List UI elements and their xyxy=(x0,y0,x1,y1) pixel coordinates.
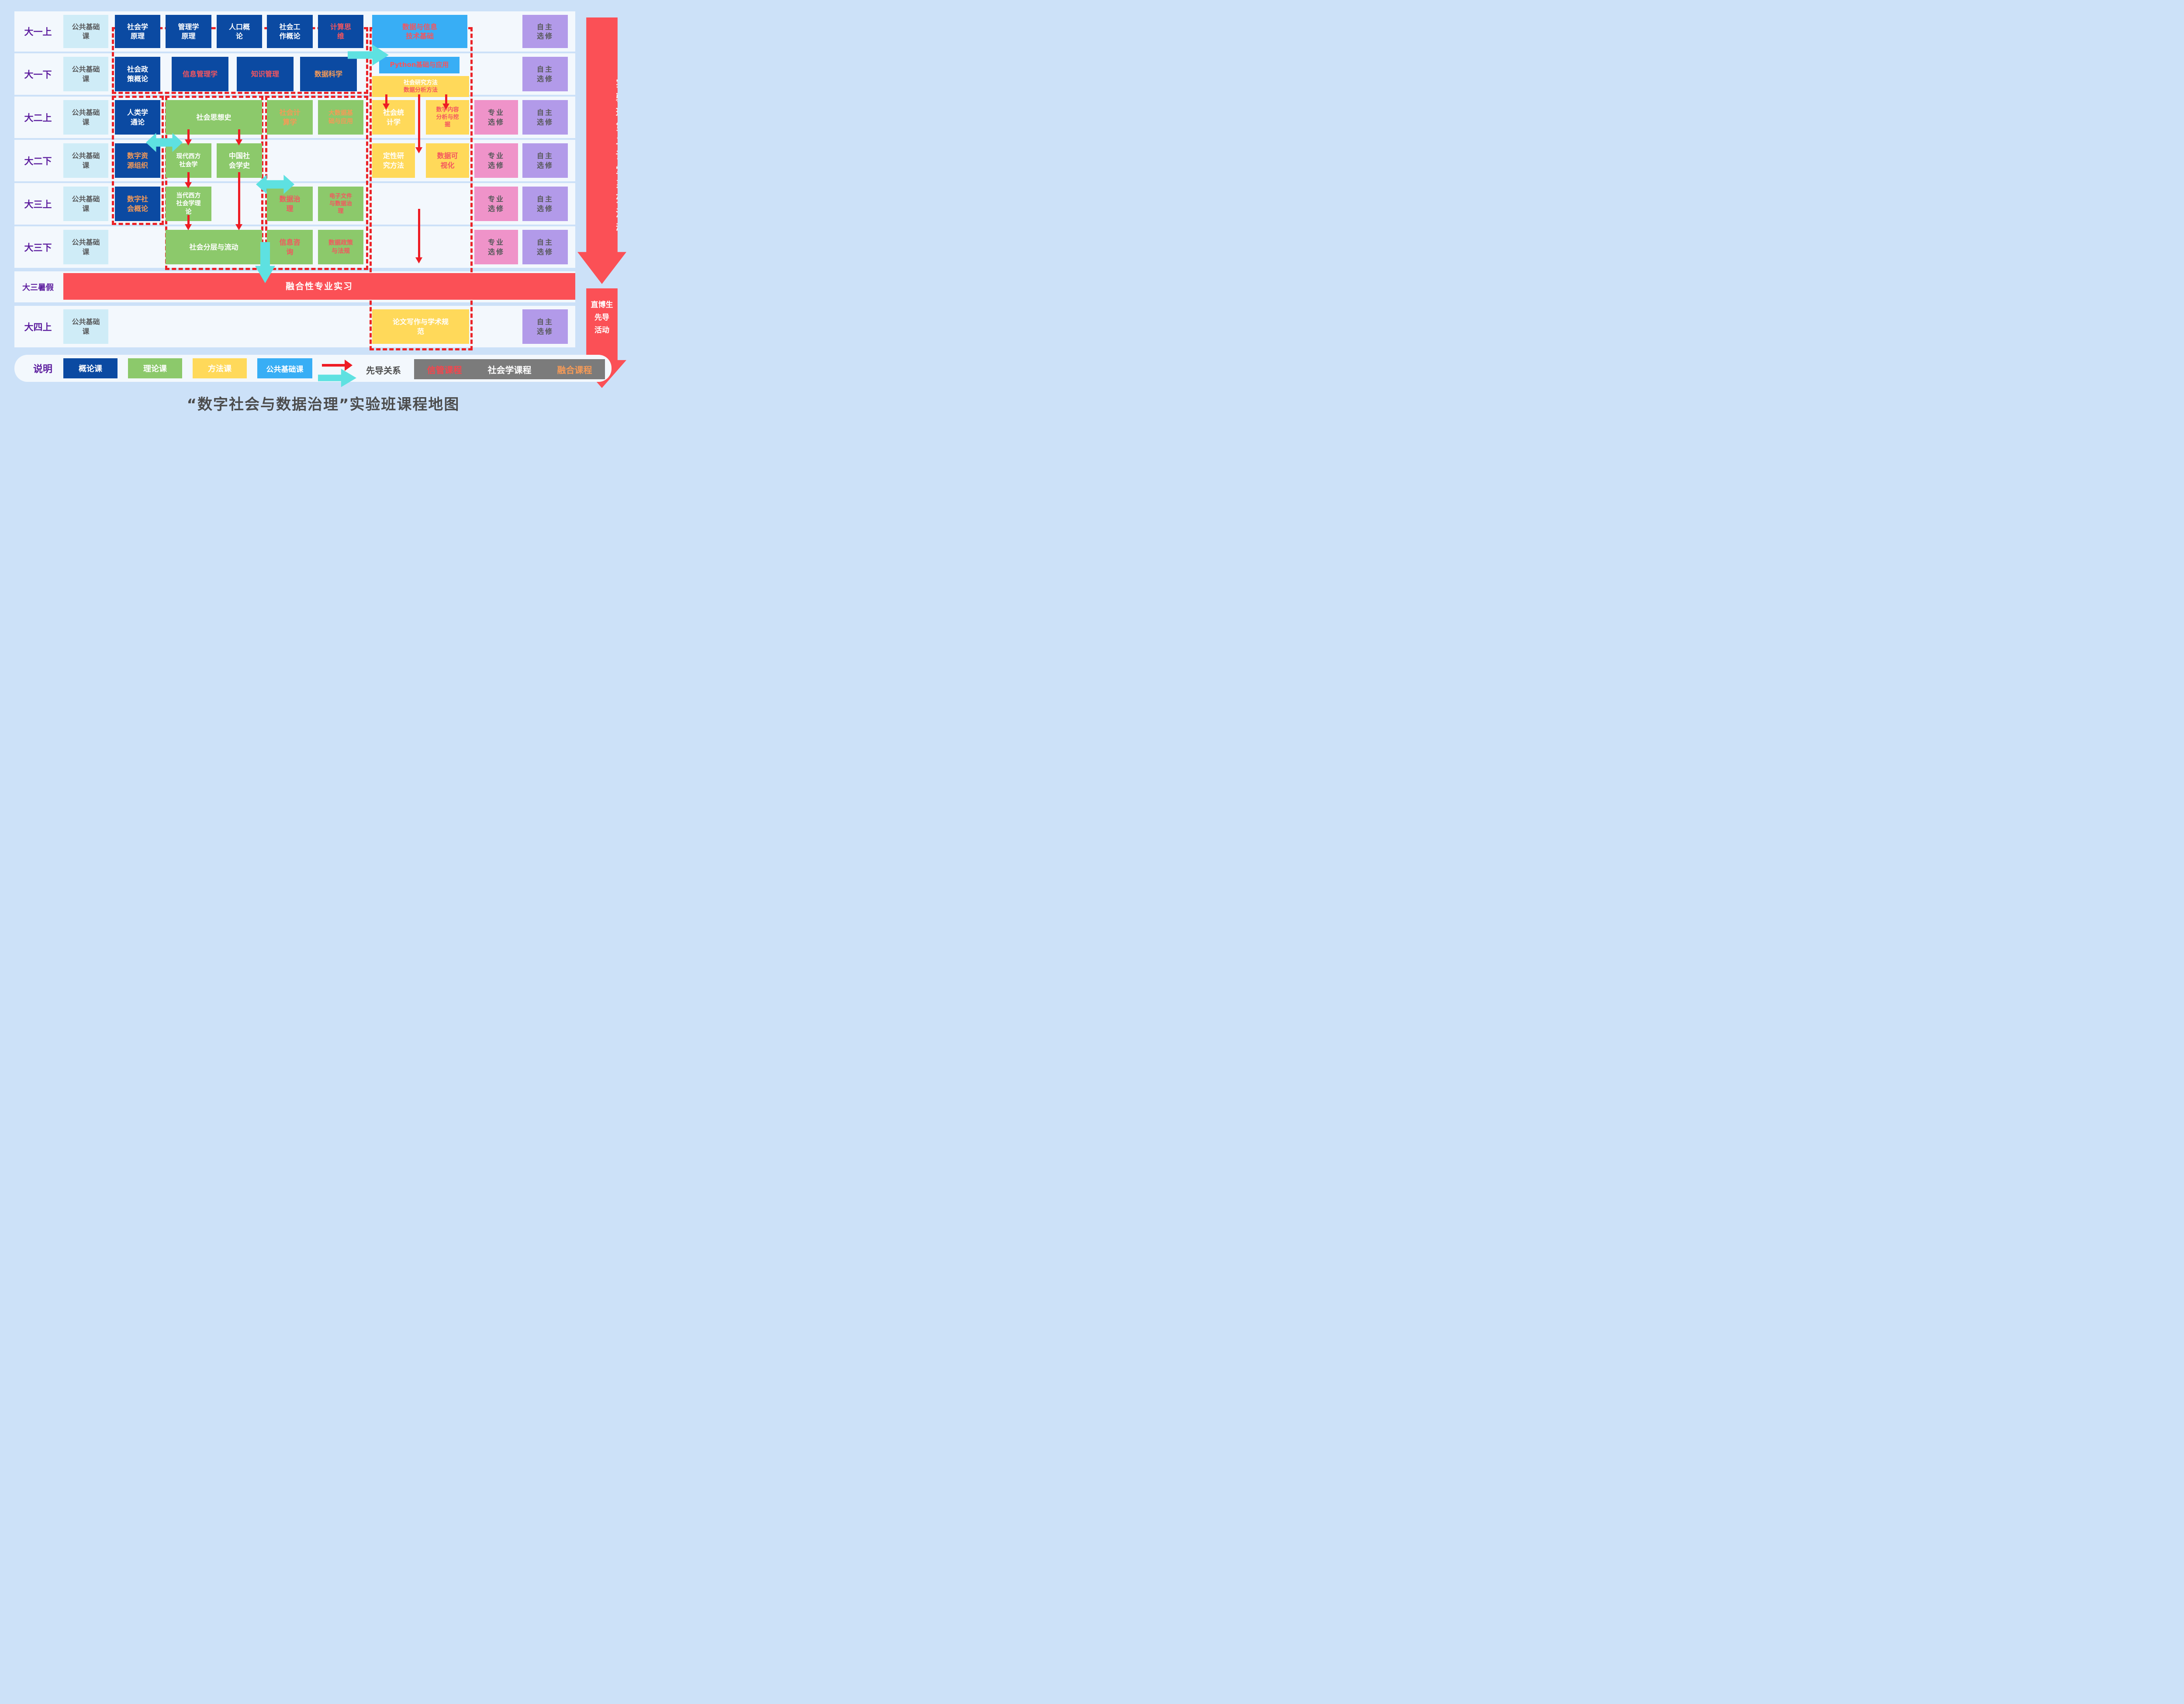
page-title: “数字社会与数据治理”实验班课程地图 xyxy=(17,392,629,414)
semester-label: 大二下 xyxy=(14,140,62,181)
elective-free: 自主 选修 xyxy=(522,143,568,178)
semester-label: 大三下 xyxy=(14,226,62,268)
course-social-statistics: 社会统 计学 xyxy=(372,100,415,135)
prereq-arrow-contemporary-to-stratification xyxy=(187,215,190,225)
course-social-stratification: 社会分层与流动 xyxy=(166,230,262,264)
elective-free: 自主 选修 xyxy=(522,15,568,48)
semester-label: 大一下 xyxy=(14,53,62,95)
prereq-arrow-modern-to-contemporary xyxy=(187,172,190,183)
course-social-work-intro: 社会工 作概论 xyxy=(267,15,313,48)
public-course-box: 公共基础 课 xyxy=(63,100,108,135)
course-research-methods: 社会研究方法 数据分析方法 xyxy=(372,76,469,97)
public-course-box: 公共基础 课 xyxy=(63,187,108,221)
elective-major: 专业 选修 xyxy=(474,230,518,264)
semester-label: 大三上 xyxy=(14,183,62,225)
internship-band: 融合性专业实习 xyxy=(63,273,575,300)
semester-label: 大四上 xyxy=(14,306,62,347)
course-management-principles: 管理学 原理 xyxy=(166,15,211,48)
prereq-arrow-methods-long xyxy=(418,94,420,148)
elective-free: 自主 选修 xyxy=(522,230,568,264)
prereq-arrow-methods-to-statistics xyxy=(385,94,387,104)
elective-free: 自主 选修 xyxy=(522,187,568,221)
course-data-info-tech-basics: 数据与信息 技术基础 xyxy=(372,15,467,48)
course-qualitative-methods: 定性研 究方法 xyxy=(372,143,415,178)
course-computational-thinking: 计算思 维 xyxy=(318,15,363,48)
elective-major: 专业 选修 xyxy=(474,100,518,135)
course-social-computing: 社会计 算学 xyxy=(267,100,313,135)
course-data-science: 数据科学 xyxy=(300,57,357,91)
course-sociology-principles: 社会学 原理 xyxy=(115,15,160,48)
legend-theory-course: 理论课 xyxy=(128,358,182,378)
legend-course-tags: 信管课程 社会学课程 融合课程 xyxy=(414,359,605,379)
course-python-basics: Python基础与应用 xyxy=(379,57,460,73)
elective-free: 自主 选修 xyxy=(522,309,568,344)
course-information-management: 信息管理学 xyxy=(172,57,228,91)
course-population-intro: 人口概 论 xyxy=(217,15,262,48)
course-anthropology: 人类学 通论 xyxy=(115,100,160,135)
legend-red-arrow xyxy=(322,364,345,367)
course-history-social-thought: 社会思想史 xyxy=(166,100,262,135)
prereq-arrow-methods-to-content-mining xyxy=(445,94,447,104)
legend-public-course: 公共基础课 xyxy=(257,358,312,378)
banner-second-classroom-label: 实验班第二课堂系列活动 xyxy=(577,55,626,260)
course-social-policy-intro: 社会政 策概论 xyxy=(115,57,160,91)
elective-free: 自主 选修 xyxy=(522,57,568,91)
course-data-policy-law: 数据政策 与法规 xyxy=(318,230,363,264)
research-methods-line1: 社会研究方法 xyxy=(404,79,438,87)
course-information-consulting: 信息咨 询 xyxy=(267,230,313,264)
elective-free: 自主 选修 xyxy=(522,100,568,135)
legend-arrow-label: 先导关系 xyxy=(359,361,408,378)
public-course-box: 公共基础 课 xyxy=(63,230,108,264)
prereq-arrow-thought-to-chinese xyxy=(238,129,240,140)
course-big-data-basics: 大数据基 础与应用 xyxy=(318,100,363,135)
semester-label: 大三暑假 xyxy=(14,271,62,302)
course-erecords-data-governance: 电子文件 与数据治 理 xyxy=(318,187,363,221)
course-map: 大一上 大一下 大二上 大二下 大三上 大三下 大三暑假 大四上 公共基础 课 … xyxy=(0,0,629,426)
course-knowledge-management: 知识管理 xyxy=(237,57,294,91)
prereq-arrow-chinese-to-stratification xyxy=(238,172,240,225)
semester-label: 大一上 xyxy=(14,11,62,52)
banner-phd-preparatory-label: 直博生 先导 活动 xyxy=(577,299,626,337)
course-thesis-writing: 论文写作与学术规 范 xyxy=(372,309,469,344)
research-methods-line2: 数据分析方法 xyxy=(404,87,438,94)
prereq-arrow-methods-to-internship xyxy=(418,209,420,258)
course-digital-society-intro: 数字社 会概论 xyxy=(115,187,160,221)
public-course-box: 公共基础 课 xyxy=(63,57,108,91)
prereq-arrow-thought-to-modern xyxy=(187,129,190,140)
legend-tag-im-course: 信管课程 xyxy=(427,363,462,376)
course-data-governance: 数据治 理 xyxy=(267,187,313,221)
course-data-visualization: 数据可 视化 xyxy=(426,143,469,178)
public-course-box: 公共基础 课 xyxy=(63,15,108,48)
legend-red-arrow-head xyxy=(345,360,352,371)
semester-label: 大二上 xyxy=(14,97,62,138)
legend-tag-sociology-course: 社会学课程 xyxy=(488,363,532,376)
public-course-box: 公共基础 课 xyxy=(63,309,108,344)
banner-second-classroom: 实验班第二课堂系列活动 xyxy=(577,17,626,284)
elective-major: 专业 选修 xyxy=(474,187,518,221)
public-course-box: 公共基础 课 xyxy=(63,143,108,178)
elective-major: 专业 选修 xyxy=(474,143,518,178)
legend-heading: 说明 xyxy=(21,358,65,378)
legend-intro-course: 概论课 xyxy=(63,358,117,378)
legend-method-course: 方法课 xyxy=(193,358,247,378)
legend-tag-fusion-course: 融合课程 xyxy=(557,363,592,376)
